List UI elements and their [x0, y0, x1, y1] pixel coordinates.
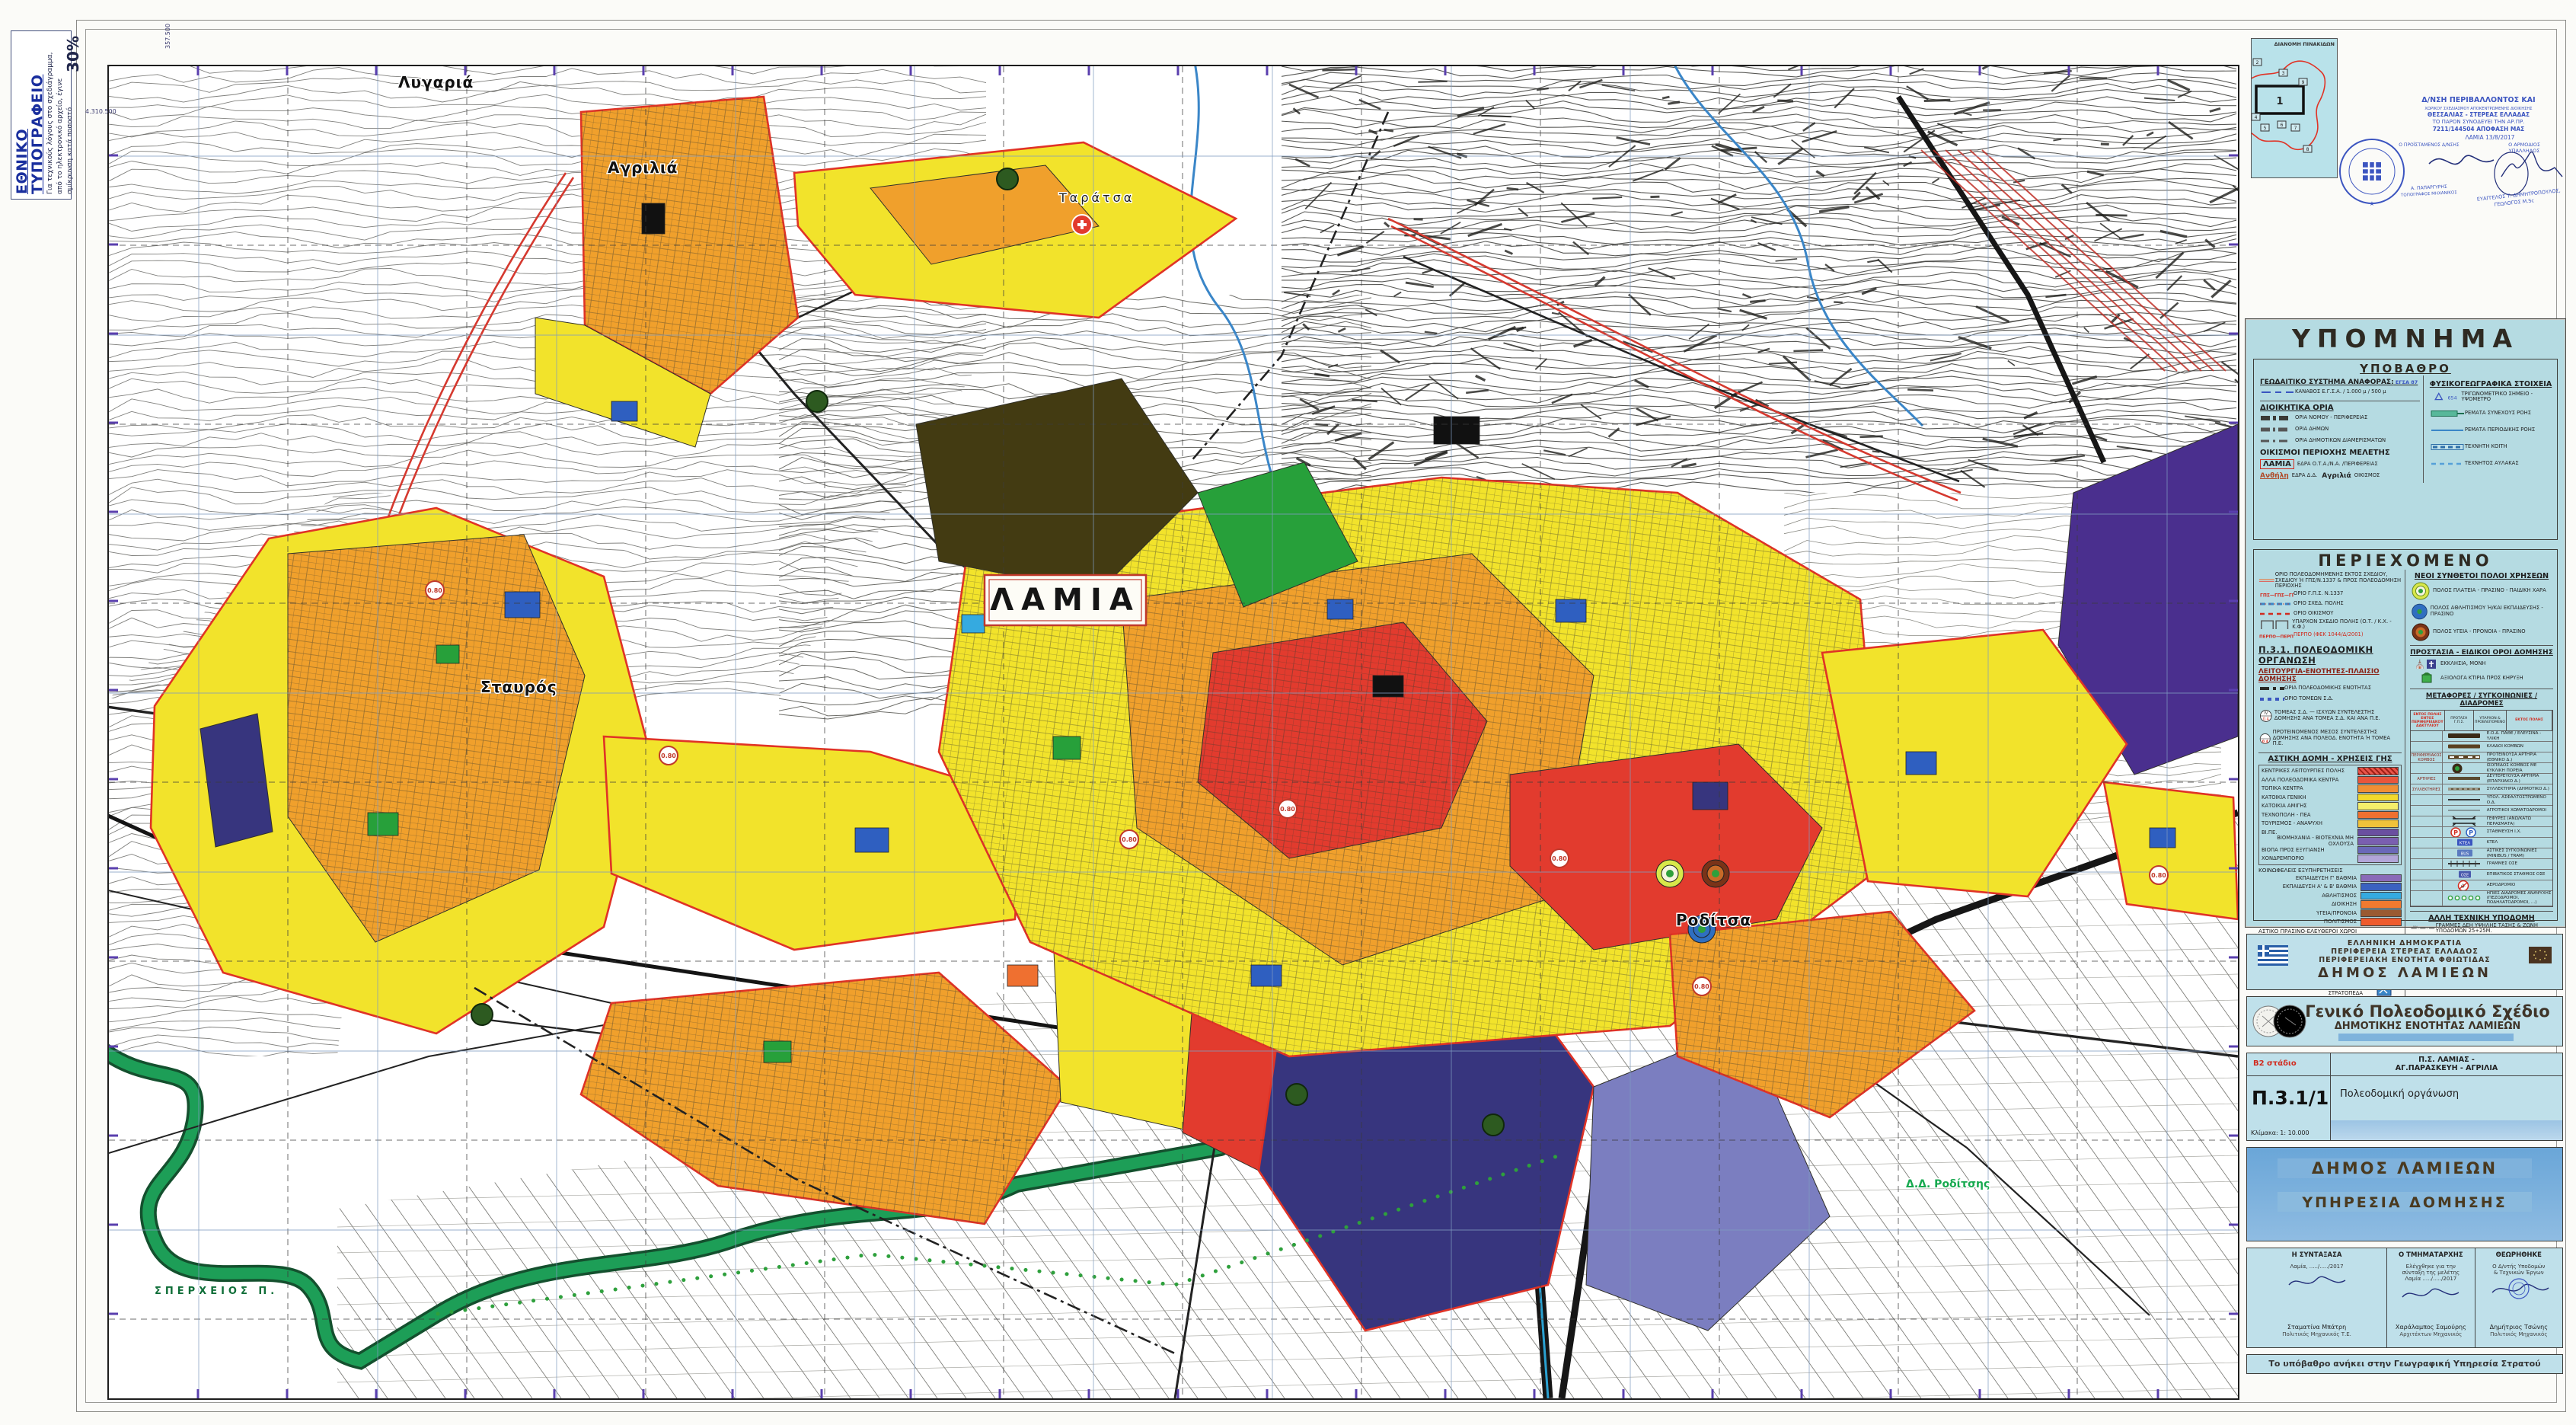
edge-tick [1890, 1389, 1892, 1398]
printing-office-note: ΕΘΝΙΚΟ ΤΥΠΟΓΡΑΦΕΙΟ Για τεχνικούς λόγους … [11, 30, 72, 200]
greendots-symbol [2447, 893, 2482, 903]
authority-municipality: ΔΗΜΟΣ ΛΑΜΙΕΩΝ [2247, 965, 2562, 981]
transport-tag [2411, 731, 2443, 741]
transport-header-cell: ΕΚΤΟΣ ΠΟΛΗΣ [2507, 711, 2552, 730]
legend-title: ΥΠΟΜΝΗΜΑ [2246, 324, 2565, 353]
legend-item: ΚΑΝΑΒΟΣ Ε.Γ.Σ.Α. / 1.000 μ / 500 μ [2260, 386, 2420, 398]
edge-tick [197, 66, 200, 75]
info-blue-band [2331, 1120, 2562, 1140]
stamp-text: Δ/ΝΣΗ ΠΕΡΙΒΑΛΛΟΝΤΟΣ ΚΑΙ [2421, 96, 2535, 104]
city-label: ΛΑΜΙΑ [990, 583, 1141, 618]
parcel [1053, 736, 1081, 759]
transport-symbol [2443, 859, 2485, 869]
koinofeleis-label: ΕΚΠΑΙΔΕΥΣΗ Γ' ΒΑΘΜΙΑ [2296, 875, 2357, 881]
koinofeleis-swatch [2361, 900, 2402, 909]
basemap-credit: Το υπόβαθρο ανήκει στην Γεωγραφική Υπηρε… [2247, 1359, 2562, 1369]
b3-symbol [2260, 436, 2295, 446]
ratio-badge-value: 0.80 [2151, 872, 2166, 879]
transport-header-cell: ΠΡΟΤΑΣΗ Γ.Π.Σ. [2445, 711, 2474, 730]
transport-symbol: ✈ [2443, 880, 2485, 890]
settlement-example: ΑνθήληΕΔΡΑ Δ.Δ. [2260, 472, 2317, 480]
edge-tick [2229, 778, 2238, 781]
landuse-swatch [2357, 811, 2399, 820]
sheet-index-inset: ΔΙΑΝΟΜΗ ΠΙΝΑΚΙΔΩΝ 123945678 [2251, 38, 2338, 178]
map-canvas[interactable]: 0.800.800.800.800.800.800.80ΛΑΜΙΑΑγριλιά… [107, 65, 2239, 1400]
koinofeleis-label: ΕΚΠΑΙΔΕΥΣΗ Α' & Β' ΒΑΘΜΙΑ [2283, 883, 2357, 890]
dashbar-symbol [2447, 752, 2482, 762]
transport-label: ΚΛΑΔΟΙ ΚΟΜΒΩΝ [2485, 744, 2552, 749]
edge-tick [109, 1313, 118, 1315]
stream-solid-symbol [2430, 408, 2465, 419]
svg-text:0.4: 0.4 [2263, 717, 2269, 721]
protection-item-label: ΕΚΚΛΗΣΙΑ, ΜΟΝΗ [2440, 661, 2486, 667]
boundary-item-label: ΟΡΙΟ ΟΙΚΙΣΜΟΥ [2294, 611, 2333, 617]
circle-04-symbol: 0.4 [2258, 728, 2273, 749]
circle-iv-symbol: IV0.4 [2258, 705, 2274, 727]
tech-bed-symbol [2430, 442, 2465, 452]
transport-heading: ΜΕΤΑΦΟΡΕΣ / ΣΥΓΚΟΙΝΩΝΙΕΣ / ΔΙΑΔΡΟΜΕΣ [2410, 692, 2553, 708]
legend-item: ΤΕΧΝΗΤΟΣ ΑΥΛΑΚΑΣ [2430, 455, 2554, 472]
edge-tick [2229, 867, 2238, 870]
ratio-badge-value: 0.80 [661, 752, 676, 759]
stamp-text: ΘΕΣΣΑΛΙΑΣ - ΣΤΕΡΕΑΣ ΕΛΛΑΔΑΣ [2428, 111, 2530, 118]
sheet-number: 3 [2282, 71, 2285, 76]
line-thin-symbol [2447, 806, 2482, 816]
edge-tick [109, 778, 118, 781]
signatures-box: Η ΣΥΝΤΑΞΑΣΑΛαμία, ...../...../2017Σταματ… [2246, 1248, 2563, 1348]
transport-label: Ε.Ο.Δ. ΠΑΘΕ / ΕΛΕΥΣΙΝΑ - ΥΛΙΚΗ [2485, 731, 2552, 740]
stamp-text: ★ [2369, 200, 2374, 207]
topographic-plan-svg[interactable]: 0.800.800.800.800.800.800.80ΛΑΜΙΑΑγριλιά… [109, 66, 2238, 1398]
parcel [1251, 965, 1282, 986]
edge-tick [1444, 1389, 1447, 1398]
koinofeleis-swatch [2361, 883, 2402, 891]
edge-tick [2229, 1046, 2238, 1048]
transport-row: PPΣΤΑΘΜΕΥΣΗ Ι.Χ. [2411, 827, 2552, 838]
settlement-example-label: ΟΙΚΙΣΜΟΣ [2354, 473, 2380, 479]
koinofeleis-swatch [2361, 909, 2402, 918]
legend-item-label: ΤΕΧΝΗΤΗ ΚΟΙΤΗ [2465, 444, 2507, 450]
transport-label: ΓΕΦΥΡΕΣ (ΑΝΩ/ΚΑΤΩ ΠΕΡΑΣΜΑΤΑ) [2485, 816, 2552, 826]
infra-heading: ΑΛΛΗ ΤΕΧΝΙΚΗ ΥΠΟΔΟΜΗ [2410, 914, 2553, 922]
physiographic-heading: ΦΥΣΙΚΟΓΕΩΓΡΑΦΙΚΑ ΣΤΟΙΧΕΙΑ [2430, 380, 2554, 388]
transport-table: ΕΝΤΟΣ ΠΟΛΗΣ ΕΝΤΟΣ ΠΕΡΙΦΕΡΕΙΑΚΟΥ ΔΑΚΤΥΛΙΟ… [2410, 710, 2553, 907]
transport-row: ΓΡΑΜΜΕΣ ΟΣΕ [2411, 859, 2552, 870]
edge-tick [732, 1389, 734, 1398]
grid-coordinate-top: 357.500 [164, 24, 171, 49]
bar-dark-symbol [2447, 731, 2482, 741]
grid-coordinate-left: 4.310.500 [85, 108, 117, 115]
settlement-example: ΛΑΜΙΑΕΔΡΑ Ο.Τ.Α./Ν.Α. /ΠΕΡΙΦΕΡΕΙΑΣ [2260, 459, 2378, 469]
transport-symbol [2443, 752, 2485, 762]
title-highlight-bar [2338, 1034, 2514, 1041]
composite-pole-core [1712, 870, 1719, 877]
edge-tick [2068, 1389, 2070, 1398]
sheet-number: 2 [2256, 60, 2259, 65]
edge-tick [375, 1389, 378, 1398]
transport-label: ΔΕΥΤΕΡΕΥΟΥΣΑ ΑΡΤΗΡΙΑ (ΕΠΑΡΧΙΑΚΟ Δ.) [2485, 774, 2552, 783]
edge-tick [109, 1135, 118, 1137]
reduction-percent: 30% [64, 36, 82, 72]
svg-text:ΚΤΕΛ: ΚΤΕΛ [2459, 842, 2470, 846]
function-item: IV0.4ΤΟΜΕΑΣ Σ.Δ. — ΙΣΧΥΩΝ ΣΥΝΤΕΛΕΣΤΗΣ ΔΟ… [2258, 705, 2402, 727]
trig-symbol: 654 [2430, 391, 2462, 402]
signature-column: ΘΕΩΡΗΘΗΚΕΟ Δ/ντής Υποδομών& Τεχνικών Έργ… [2475, 1248, 2562, 1347]
legend-item-label: ΤΕΧΝΗΤΟΣ ΑΥΛΑΚΑΣ [2465, 461, 2519, 467]
edge-tick [732, 66, 734, 75]
parcel [1906, 752, 1936, 775]
transport-tag [2411, 859, 2443, 869]
sheet-number: 8 [2306, 147, 2309, 152]
background-right-column: ΦΥΣΙΚΟΓΕΩΓΡΑΦΙΚΑ ΣΤΟΙΧΕΙΑ654ΤΡΙΓΩΝΟΜΕΤΡΙ… [2424, 375, 2557, 483]
transport-tag [2411, 891, 2443, 906]
settlement-examples: ΛΑΜΙΑΕΔΡΑ Ο.Τ.Α./Ν.Α. /ΠΕΡΙΦΕΡΕΙΑΣΑνθήλη… [2260, 459, 2420, 483]
svg-text:⛪: ⛪ [2415, 659, 2425, 669]
transport-tag [2411, 848, 2443, 858]
stream-line-symbol [2430, 425, 2465, 436]
transport-row: ΚΛΑΔΟΙ ΚΟΜΒΩΝ [2411, 742, 2552, 752]
landuse-swatch [2357, 820, 2399, 828]
admin-boundaries-heading: ΔΙΟΙΚΗΤΙΚΑ ΟΡΙΑ [2260, 404, 2420, 412]
place-label: Αγριλιά [608, 158, 678, 177]
legend-content-title: ΠΕΡΙΕΧΟΜΕΝΟ [2254, 551, 2557, 570]
edge-tick [286, 66, 289, 75]
b-red-symbol [2258, 609, 2294, 618]
transport-label: ΗΠΙΕΣ ΔΙΑΔΡΟΜΕΣ ΑΝΑΨΥΧΗΣ (ΠΕΖΟΔΡΟΜΟΙ, ΠΟ… [2485, 891, 2552, 906]
transport-tag [2411, 880, 2443, 890]
parcel [1373, 676, 1403, 697]
edge-tick [1801, 1389, 1803, 1398]
landuse-row: ΤΟΠΙΚΑ ΚΕΝΤΡΑ [2262, 784, 2399, 794]
edge-tick [109, 511, 118, 513]
b2-symbol [2260, 425, 2295, 434]
edge-tick [910, 1389, 912, 1398]
pole-item: ΠΟΛΟΣ ΥΓΕΙΑ - ΠΡΟΝΟΙΑ - ΠΡΑΣΙΝΟ [2410, 621, 2553, 642]
junction-node [806, 391, 828, 412]
parcel [368, 813, 398, 836]
church-symbol: ⛪ [2410, 658, 2440, 670]
transport-label: ΣΥΛΛΕΚΤΗΡΙΑ (ΔΗΜΟΤΙΚΟ Δ.) [2485, 787, 2552, 791]
function-item-label: ΤΟΜΕΑΣ Σ.Δ. — ΙΣΧΥΩΝ ΣΥΝΤΕΛΕΣΤΗΣ ΔΟΜΗΣΗΣ… [2274, 710, 2402, 721]
divider [2410, 689, 2553, 689]
boundary-item: ΠΕΡΠΟ—ΠΕΡΠΟΠΕΡΠΟ (ΦΕΚ 1044/Δ/2001) [2258, 631, 2402, 641]
legend-item: ΟΡΙΑ ΔΗΜΟΤΙΚΩΝ ΔΙΑΜΕΡΙΣΜΑΤΩΝ [2260, 435, 2420, 446]
edge-tick [1712, 66, 1714, 75]
sheet-number: 7 [2294, 126, 2297, 131]
place-label: Ροδίτσα [1676, 911, 1751, 929]
parking-symbol: PP [2447, 827, 2482, 837]
boundary-item-label: ΥΠΑΡΧΟΝ ΣΧΕΔΙΟ ΠΟΛΗΣ (Ο.Τ. / Κ.Χ. - Κ.Φ.… [2292, 619, 2402, 631]
transport-symbol [2443, 806, 2485, 816]
dei-symbol: ΔΕΗ [2410, 924, 2436, 933]
parcel [1693, 782, 1728, 810]
edge-tick [109, 600, 118, 602]
ratio-badge-value: 0.80 [1280, 806, 1295, 813]
stamp-text: ΤΟΠΟΓΡΑΦΟΣ ΜΗΧΑΝΙΚΟΣ [2400, 190, 2457, 198]
b-gps-symbol: ΓΠΣ—ΓΠΣ—ΓΠΣ [2258, 589, 2294, 599]
legend-item: ΡΕΜΑΤΑ ΣΥΝΕΧΟΥΣ ΡΟΗΣ [2430, 405, 2554, 422]
svg-text:P: P [2453, 829, 2458, 836]
function-item: 0.4ΠΡΟΤΕΙΝΟΜΕΝΟΣ ΜΕΣΟΣ ΣΥΝΤΕΛΕΣΤΗΣ ΔΟΜΗΣ… [2258, 727, 2402, 750]
transport-tag: ΠΕΡΙΦΕΡΕΙΑΚΟΣ ΚΟΜΒΟΣ [2411, 752, 2443, 762]
protection-item: ⛪ΕΚΚΛΗΣΙΑ, ΜΟΝΗ [2410, 657, 2553, 671]
sheet-number: 5 [2264, 126, 2267, 131]
bridge-symbol [2447, 816, 2482, 826]
legend-item-label: ΤΡΙΓΩΝΟΜΕΤΡΙΚΟ ΣΗΜΕΙΟ - ΥΨΟΜΕΤΡΟ [2461, 391, 2554, 403]
pe-line-symbol [2258, 684, 2284, 693]
parcel [611, 401, 637, 421]
function-item-label: ΟΡΙΟ ΤΟΜΕΩΝ Σ.Δ. [2284, 696, 2333, 702]
landuse-label: ΒΙΟΠΑ ΠΡΟΣ ΕΞΥΓΙΑΝΣΗ [2262, 847, 2325, 853]
transport-tag [2411, 870, 2443, 880]
transport-header-cell: ΕΝΤΟΣ ΠΟΛΗΣ ΕΝΤΟΣ ΠΕΡΙΦΕΡΕΙΑΚΟΥ ΔΑΚΤΥΛΙΟ… [2411, 711, 2445, 730]
stamp-text: Ο ΠΡΟΪΣΤΑΜΕΝΟΣ Δ/ΝΣΗΣ [2399, 142, 2459, 148]
approval-stamp: Δ/ΝΣΗ ΠΕΡΙΒΑΛΛΟΝΤΟΣ ΚΑΙΧΩΡΙΚΟΥ ΣΧΕΔΙΑΣΜΟ… [2338, 91, 2566, 213]
parcel [1007, 965, 1038, 986]
protection-item: ΑΞΙΟΛΟΓΑ ΚΤΙΡΙΑ ΠΡΟΣ ΚΗΡΥΞΗ [2410, 671, 2553, 685]
authority-box: ΕΛΛΗΝΙΚΗ ΔΗΜΟΚΡΑΤΙΑ ΠΕΡΙΦΕΡΕΙΑ ΣΤΕΡΕΑΣ Ε… [2246, 934, 2563, 990]
settlement-symbol-text: Ανθήλη [2260, 472, 2289, 480]
sheet-number: 6 [2281, 123, 2284, 128]
koinofeleis-row: ΑΘΛΗΤΙΣΜΟΣ [2258, 891, 2402, 900]
ktel-symbol: ΚΤΕΛ [2447, 838, 2482, 848]
edge-tick [643, 66, 645, 75]
legend-background-title: ΥΠΟΒΑΘΡΟ [2254, 362, 2557, 375]
edge-tick [109, 244, 118, 246]
settlement-example-label: ΕΔΡΑ Δ.Δ. [2292, 473, 2317, 479]
stage-label: B2 στάδιο [2253, 1059, 2330, 1068]
legend-item: 654ΤΡΙΓΩΝΟΜΕΤΡΙΚΟ ΣΗΜΕΙΟ - ΥΨΟΜΕΤΡΟ [2430, 388, 2554, 405]
koinofeleis-swatch [2361, 892, 2402, 900]
sheet-subject: Πολεοδομική οργάνωση [2340, 1088, 2562, 1100]
project-title: Γενικό Πολεοδομικό Σχέδιο [2293, 1002, 2562, 1021]
svg-text:ΟΣΕ: ΟΣΕ [2461, 874, 2469, 878]
edge-tick [2229, 1224, 2238, 1226]
transport-row: ΥΠΟΛ. ΑΣΦΑΛΤΟΣΤΡΩΜΕΝΟ Ο.Δ. [2411, 795, 2552, 806]
transport-symbol [2443, 763, 2485, 773]
b-orange-symbol [2258, 576, 2275, 585]
transport-tag [2411, 763, 2443, 773]
sheet-index-map: 123945678 [2252, 39, 2335, 176]
parcel [764, 1041, 791, 1062]
sheet-1-number: 1 [2276, 96, 2283, 107]
edge-tick [2229, 600, 2238, 602]
legend-item-label: ΡΕΜΑΤΑ ΠΕΡΙΟΔΙΚΗΣ ΡΟΗΣ [2465, 427, 2535, 433]
airport-symbol: ✈ [2447, 880, 2482, 890]
background-left-column: ΓΕΩΔΑΙΤΙΚΟ ΣΥΣΤΗΜΑ ΑΝΑΦΟΡΑΣ: ΕΓΣΑ 87ΚΑΝΑ… [2254, 375, 2424, 483]
stamp-text: ΥΠΑΛΛΗΛΟΣ [2508, 148, 2540, 154]
edge-tick [1444, 66, 1447, 75]
legend-content-box: ΠΕΡΙΕΧΟΜΕΝΟ ΟΡΙΟ ΠΟΛΕΟΔΟΜΗΜΕΝΗΣ ΕΚΤΟΣ ΣΧ… [2253, 549, 2558, 921]
place-label: ΣΠΕΡΧΕΙΟΣ Π. [155, 1286, 278, 1297]
legend-item-label: ΚΑΝΑΒΟΣ Ε.Γ.Σ.Α. / 1.000 μ / 500 μ [2295, 389, 2386, 395]
koinofeleis-heading: ΚΟΙΝΩΦΕΛΕΙΣ ΕΞΥΠΗΡΕΤΗΣΕΙΣ [2258, 867, 2402, 874]
drawing-code: Π.3.1/1 [2252, 1087, 2330, 1109]
transport-header-row: ΕΝΤΟΣ ΠΟΛΗΣ ΕΝΤΟΣ ΠΕΡΙΦΕΡΕΙΑΚΟΥ ΔΑΚΤΥΛΙΟ… [2411, 711, 2552, 731]
stamp-text: Ο ΑΡΜΟΔΙΟΣ [2508, 142, 2540, 148]
edge-tick [1712, 1389, 1714, 1398]
authority-line2: ΠΕΡΙΦΕΡΕΙΑ ΣΤΕΡΕΑΣ ΕΛΛΑΔΟΣ [2247, 947, 2562, 956]
edge-tick [1177, 1389, 1179, 1398]
function-item-label: ΟΡΙΑ ΠΟΛΕΟΔΟΜΙΚΗΣ ΕΝΟΤΗΤΑΣ [2284, 685, 2371, 692]
study-area-line2: ΑΓ.ΠΑΡΑΣΚΕΥΗ - ΑΓΡΙΛΙΑ [2331, 1064, 2562, 1072]
line-symbol [2447, 795, 2482, 805]
svg-text:ΓΠΣ—ΓΠΣ—ΓΠΣ: ΓΠΣ—ΓΠΣ—ΓΠΣ [2260, 593, 2294, 599]
edge-tick [1088, 1389, 1090, 1398]
signature-left [2429, 155, 2494, 164]
transport-symbol: BUS [2443, 848, 2485, 858]
edge-tick [1355, 66, 1358, 75]
edge-tick [2229, 689, 2238, 692]
transport-symbol [2443, 893, 2485, 903]
edge-tick [2229, 511, 2238, 513]
bar-thin-symbol [2447, 774, 2482, 784]
landuse-row: ΧΟΝΔΡΕΜΠΟΡΙΟ [2262, 855, 2399, 864]
landuse-swatch [2357, 784, 2399, 793]
koinofeleis-row: ΠΟΛΙΤΙΣΜΟΣ [2258, 918, 2402, 927]
junction-node [1483, 1114, 1504, 1136]
signatory-name: Σταματίνα ΜπάτρηΠολιτικός Μηχανικός Τ.Ε. [2247, 1324, 2386, 1338]
edge-tick [109, 689, 118, 692]
landuse-label: ΚΕΝΤΡΙΚΕΣ ΛΕΙΤΟΥΡΓΙΕΣ ΠΟΛΗΣ [2262, 768, 2345, 774]
boundary-item-label: ΠΕΡΠΟ (ΦΕΚ 1044/Δ/2001) [2294, 632, 2364, 638]
transport-label: ΣΤΑΘΜΕΥΣΗ Ι.Χ. [2485, 829, 2552, 834]
junction-node [997, 168, 1018, 190]
signature-loop [2495, 152, 2528, 195]
boundary-item-label: ΟΡΙΟ Γ.Π.Σ. Ν.1337 [2294, 591, 2343, 597]
approval-stamp-graphics: Δ/ΝΣΗ ΠΕΡΙΒΑΛΛΟΝΤΟΣ ΚΑΙΧΩΡΙΚΟΥ ΣΧΕΔΙΑΣΜΟ… [2338, 91, 2566, 213]
authority-line1: ΕΛΛΗΝΙΚΗ ΔΗΜΟΚΡΑΤΙΑ [2247, 939, 2562, 947]
parcel [855, 828, 889, 852]
edge-tick [286, 1389, 289, 1398]
boundary-item: ΥΠΑΡΧΟΝ ΣΧΕΔΙΟ ΠΟΛΗΣ (Ο.Τ. / Κ.Χ. - Κ.Φ.… [2258, 619, 2402, 631]
transport-tag [2411, 806, 2443, 816]
transport-row: ✈ΑΕΡΟΔΡΟΜΙΟ [2411, 880, 2552, 891]
parcel [1434, 417, 1480, 444]
stamp-text: ΤΟ ΠΑΡΟΝ ΣΥΝΟΔΕΥΕΙ ΤΗΝ ΑΡ.ΠΡ. [2432, 119, 2525, 125]
edge-tick [1266, 66, 1269, 75]
transport-symbol: PP [2443, 827, 2485, 837]
edge-tick [554, 66, 556, 75]
edge-tick [1623, 66, 1625, 75]
landuse-swatch [2357, 767, 2399, 775]
transport-row: ΠΕΡΙΦΕΡΕΙΑΚΟΣ ΚΟΜΒΟΣΠΡΟΤΕΙΝΟΥΣΑ ΑΡΤΗΡΙΑ … [2411, 752, 2552, 763]
pole-item-label: ΠΟΛΟΣ ΥΓΕΙΑ - ΠΡΟΝΟΙΑ - ΠΡΑΣΙΝΟ [2433, 629, 2526, 635]
place-label: Δ.Δ. Ροδίτσης [1906, 1178, 1990, 1190]
edge-tick [1890, 66, 1892, 75]
boundary-item: ΟΡΙΟ ΠΟΛΕΟΔΟΜΗΜΕΝΗΣ ΕΚΤΟΣ ΣΧΕΔΙΟΥ, ΣΧΕΔΙ… [2258, 572, 2402, 589]
transport-row: ΟΣΕΕΠΙΒΑΤΙΚΟΣ ΣΤΑΘΜΟΣ ΟΣΕ [2411, 870, 2552, 880]
signature-column: Ο ΤΜΗΜΑΤΑΡΧΗΣΕλέγχθηκε για τηνσύνταξη τη… [2387, 1248, 2475, 1347]
boundary-item: ΟΡΙΟ ΟΙΚΙΣΜΟΥ [2258, 609, 2402, 619]
legend-item: ΟΡΙΑ ΝΟΜΟΥ - ΠΕΡΙΦΕΡΕΙΑΣ [2260, 412, 2420, 423]
scale-label: Κλίμακα: 1: 10.000 [2251, 1129, 2309, 1136]
koinofeleis-row: ΔΙΟΙΚΗΣΗ [2258, 900, 2402, 909]
legend-panel: ΥΠΟΜΝΗΜΑ ΥΠΟΒΑΘΡΟ ΓΕΩΔΑΙΤΙΚΟ ΣΥΣΤΗΜΑ ΑΝΑ… [2245, 318, 2566, 928]
sd-dots-symbol [2258, 695, 2284, 704]
transport-symbol [2443, 774, 2485, 784]
org-name: ΔΗΜΟΣ ΛΑΜΙΕΩΝ [2247, 1159, 2562, 1177]
edge-tick [375, 66, 378, 75]
b-perpo-symbol: ΠΕΡΠΟ—ΠΕΡΠΟ [2258, 631, 2294, 640]
transport-symbol [2443, 795, 2485, 805]
transport-row: Ε.Ο.Δ. ΠΑΘΕ / ΕΛΕΥΣΙΝΑ - ΥΛΙΚΗ [2411, 731, 2552, 742]
signature-note: Ο Δ/ντής Υποδομών& Τεχνικών Έργων [2475, 1264, 2562, 1276]
grid-dash-symbol [2260, 388, 2295, 397]
landuse-label: ΚΑΤΟΙΚΙΑ ΑΜΙΓΗΣ [2262, 803, 2307, 809]
koinofeleis-row: ΥΓΕΙΑ/ΠΡΟΝΟΙΑ [2258, 909, 2402, 918]
edge-tick [109, 957, 118, 959]
edge-tick [2229, 422, 2238, 424]
edge-tick [1623, 1389, 1625, 1398]
koinofeleis-row: ΕΚΠΑΙΔΕΥΣΗ Γ' ΒΑΘΜΙΑ [2258, 874, 2402, 883]
parcel [2150, 828, 2175, 848]
koinofeleis-row: ΕΚΠΑΙΔΕΥΣΗ Α' & Β' ΒΑΘΜΙΑ [2258, 883, 2402, 892]
transport-symbol: ΟΣΕ [2443, 870, 2485, 880]
landuse-heading: ΑΣΤΙΚΗ ΔΟΜΗ - ΧΡΗΣΕΙΣ ΓΗΣ [2258, 755, 2402, 763]
p31-heading: Π.3.1. ΠΟΛΕΟΔΟΜΙΚΗ ΟΡΓΑΝΩΣΗ [2258, 644, 2402, 666]
edge-tick [109, 422, 118, 424]
signature-right [2501, 152, 2562, 177]
edge-tick [1534, 1389, 1536, 1398]
geodetic-datum: ΕΓΣΑ 87 [2394, 379, 2418, 385]
edge-tick [197, 1389, 200, 1398]
landuse-swatch [2357, 837, 2399, 845]
transport-row: ΣΥΛΛΕΚΤΗΡΙΕΣΣΥΛΛΕΚΤΗΡΙΑ (ΔΗΜΟΤΙΚΟ Δ.) [2411, 784, 2552, 795]
ratio-badge-value: 0.80 [1122, 836, 1137, 843]
protection-item-label: ΑΞΙΟΛΟΓΑ ΚΤΙΡΙΑ ΠΡΟΣ ΚΗΡΥΞΗ [2440, 676, 2523, 682]
edge-tick [1266, 1389, 1269, 1398]
printing-note-line1: Για τεχνικούς λόγους στο σχεδιάγραμμα, [46, 36, 55, 194]
landuse-label: ΤΟΠΙΚΑ ΚΕΝΤΡΑ [2262, 785, 2303, 791]
edge-tick [1355, 1389, 1358, 1398]
building-symbol [2410, 673, 2440, 685]
transport-row: ΙΣΟΠΕΔΟΣ ΚΟΜΒΟΣ ΜΕ ΚΥΚΛΙΚΗ ΠΟΡΕΙΑ [2411, 763, 2552, 774]
signature-role: Η ΣΥΝΤΑΞΑΣΑ [2247, 1251, 2386, 1259]
edge-tick [109, 155, 118, 157]
ratio-badge-value: 0.80 [1552, 855, 1567, 862]
svg-text:P: P [2469, 829, 2473, 836]
pole-b-symbol [2410, 602, 2431, 621]
eu-flag-icon [2529, 947, 2552, 963]
drawing-info-box: B2 στάδιο Π.Σ. ΛΑΜΙΑΣ - ΑΓ.ΠΑΡΑΣΚΕΥΗ - Α… [2246, 1053, 2563, 1141]
landuse-label: ΚΑΤΟΙΚΙΑ ΓΕΝΙΚΗ [2262, 794, 2306, 800]
transport-row: ΑΓΡΟΤΙΚΟΙ ΧΩΜΑΤΟΔΡΟΜΟΙ [2411, 806, 2552, 816]
ratio-badge-value: 0.80 [427, 587, 442, 594]
edge-tick [2229, 1313, 2238, 1315]
transport-label: ΑΕΡΟΔΡΟΜΙΟ [2485, 883, 2552, 887]
transport-row: ΑΡΤΗΡΙΕΣΔΕΥΤΕΡΕΥΟΥΣΑ ΑΡΤΗΡΙΑ (ΕΠΑΡΧΙΑΚΟ … [2411, 774, 2552, 784]
signature-role: ΘΕΩΡΗΘΗΚΕ [2475, 1251, 2562, 1259]
landuse-row: ΚΑΤΟΙΚΙΑ ΑΜΙΓΗΣ [2262, 802, 2399, 811]
settlement-symbol-text: ΛΑΜΙΑ [2260, 459, 2294, 469]
stamp-text: 7211/144504 ΑΠΟΦΑΣΗ ΜΑΣ [2433, 126, 2525, 133]
pole-br-symbol [2410, 623, 2433, 641]
edge-tick [999, 66, 1001, 75]
landuse-swatch [2357, 776, 2399, 784]
settlement-example-label: ΕΔΡΑ Ο.Τ.Α./Ν.Α. /ΠΕΡΙΦΕΡΕΙΑΣ [2297, 462, 2378, 468]
function-heading: ΛΕΙΤΟΥΡΓΙΑ-ΕΝΟΤΗΤΕΣ-ΠΛΑΙΣΙΟ ΔΟΜΗΣΗΣ [2258, 668, 2402, 683]
transport-tag [2411, 742, 2443, 752]
edge-tick [1088, 66, 1090, 75]
koinofeleis-label: ΠΟΛΙΤΙΣΜΟΣ [2324, 919, 2357, 925]
parcel [436, 645, 459, 663]
transport-label: ΓΡΑΜΜΕΣ ΟΣΕ [2485, 861, 2552, 866]
edge-tick [2157, 66, 2159, 75]
parcel [1327, 599, 1353, 619]
protection-heading: ΠΡΟΣΤΑΣΙΑ - ΕΙΔΙΚΟΙ ΟΡΟΙ ΔΟΜΗΣΗΣ [2410, 649, 2553, 657]
infra-item-label: ΓΡΑΜΜΕΣ ΔΕΗ ΥΨΗΛΗΣ ΤΑΣΗΣ & ΖΩΝΗ ΥΠΟΔΟΜΩΝ… [2436, 923, 2553, 935]
